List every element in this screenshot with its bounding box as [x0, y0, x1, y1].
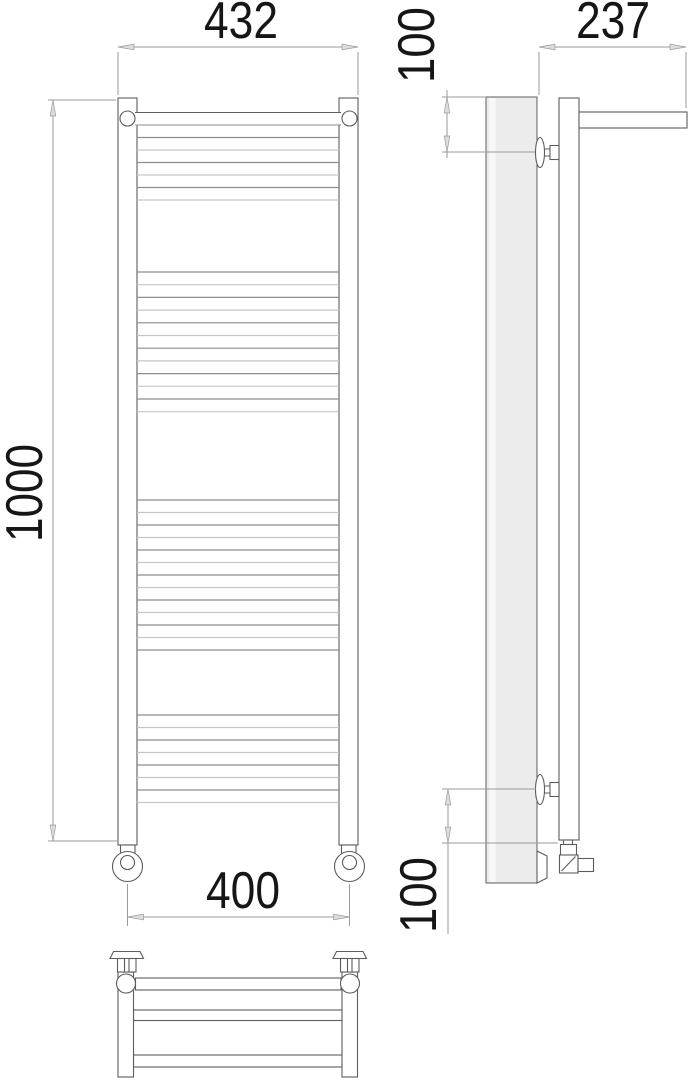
- eccentric-inner-right: [343, 856, 357, 870]
- top-view-right-cap: [341, 974, 360, 993]
- top-view: [110, 952, 367, 1078]
- top-view-main-tube: [136, 978, 342, 990]
- top-view-shelf-bar-1: [134, 1010, 343, 1021]
- drawing-canvas: 432 1000 400 100 100: [0, 0, 689, 1080]
- side-profile-highlight: [490, 98, 496, 882]
- front-view: [113, 98, 365, 882]
- tube-end-cap-left: [120, 111, 135, 126]
- rung-group-3: [137, 500, 339, 650]
- mount-bracket-top: [536, 138, 560, 168]
- dimension-label-400: 400: [206, 862, 280, 920]
- front-top-tube: [120, 111, 357, 126]
- technical-drawing: 432 1000 400 100 100: [0, 0, 689, 1080]
- front-left-post: [118, 98, 137, 845]
- corner-valve: [560, 840, 594, 873]
- dimension-height: 1000: [0, 100, 117, 841]
- side-shelf-bar: [579, 112, 687, 128]
- dimension-overall-width: 432: [118, 0, 358, 95]
- top-view-left-cap: [117, 974, 136, 993]
- rung-group-1: [137, 138, 339, 201]
- dimension-label-1000: 1000: [0, 444, 54, 542]
- tube-end-cap-right: [342, 111, 357, 126]
- side-view: [486, 97, 687, 883]
- rung-group-2: [137, 272, 339, 412]
- top-view-shelf-bar-2: [134, 1055, 343, 1067]
- dimension-label-432: 432: [204, 0, 278, 50]
- side-bottom-fitting: [537, 851, 547, 883]
- dimension-label-237: 237: [576, 0, 650, 50]
- front-right-post: [339, 98, 358, 845]
- dimension-label-100-bottom: 100: [390, 857, 448, 933]
- mount-bracket-bottom: [536, 775, 560, 805]
- side-wall-rail: [559, 98, 579, 840]
- wall-plate-right: [333, 952, 367, 973]
- wall-plate-left: [110, 952, 144, 973]
- dimension-bottom-width: 400: [128, 862, 350, 926]
- dimension-label-100-top: 100: [388, 7, 446, 83]
- eccentric-inner-left: [121, 856, 135, 870]
- dimension-depth: 237: [539, 0, 686, 108]
- rung-group-4: [137, 715, 339, 803]
